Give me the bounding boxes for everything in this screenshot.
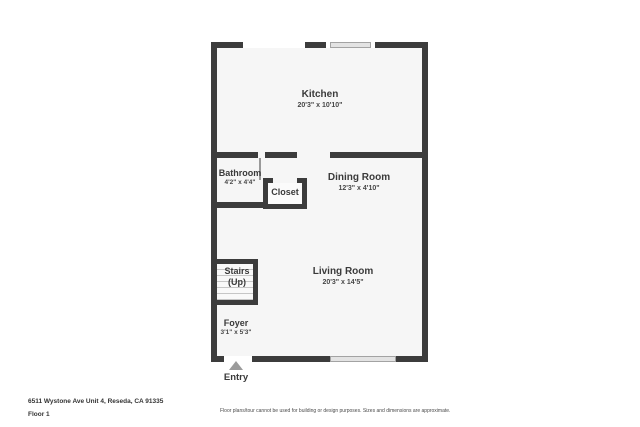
property-address: 6511 Wystone Ave Unit 4, Reseda, CA 9133…	[28, 398, 163, 405]
foyer-label: Foyer 3'1" x 5'3"	[221, 318, 252, 337]
closet-label: Closet	[271, 187, 299, 198]
living-room-window	[330, 356, 396, 362]
closet-door-opening	[273, 178, 297, 183]
kitchen-window	[330, 42, 371, 48]
living-room-label: Living Room 20'3" x 14'5"	[313, 266, 374, 287]
foyer-name: Foyer	[221, 318, 252, 329]
foyer-dims: 3'1" x 5'3"	[221, 329, 252, 337]
kitchen-dims: 20'3" x 10'10"	[297, 102, 342, 111]
living-room-dims: 20'3" x 14'5"	[313, 279, 374, 288]
stairs-name: Stairs	[224, 266, 249, 277]
closet-name: Closet	[271, 187, 299, 198]
entry-arrow-icon	[229, 361, 243, 370]
dining-room-dims: 12'3" x 4'10"	[328, 185, 390, 194]
kitchen-wall-right	[330, 152, 428, 158]
bathroom-name: Bathroom	[219, 168, 262, 179]
kitchen-wall-mid	[265, 152, 297, 158]
floor-plan-page: Kitchen 20'3" x 10'10" Bathroom 4'2" x 4…	[0, 0, 640, 427]
floor-number: Floor 1	[28, 411, 50, 418]
bathroom-label: Bathroom 4'2" x 4'4"	[219, 168, 262, 187]
bathroom-dims: 4'2" x 4'4"	[219, 179, 262, 187]
disclaimer-text: Floor plans/tour cannot be used for buil…	[220, 408, 450, 414]
dining-room-name: Dining Room	[328, 172, 390, 185]
stairs-label: Stairs (Up)	[224, 266, 249, 289]
kitchen-name: Kitchen	[297, 89, 342, 102]
kitchen-label: Kitchen 20'3" x 10'10"	[297, 89, 342, 110]
kitchen-wall-left	[211, 152, 258, 158]
entry-label: Entry	[224, 372, 248, 384]
dining-room-label: Dining Room 12'3" x 4'10"	[328, 172, 390, 193]
bathroom-south-wall	[211, 202, 265, 208]
stairs-direction: (Up)	[224, 277, 249, 288]
top-window-opening	[243, 42, 305, 48]
living-room-name: Living Room	[313, 266, 374, 279]
